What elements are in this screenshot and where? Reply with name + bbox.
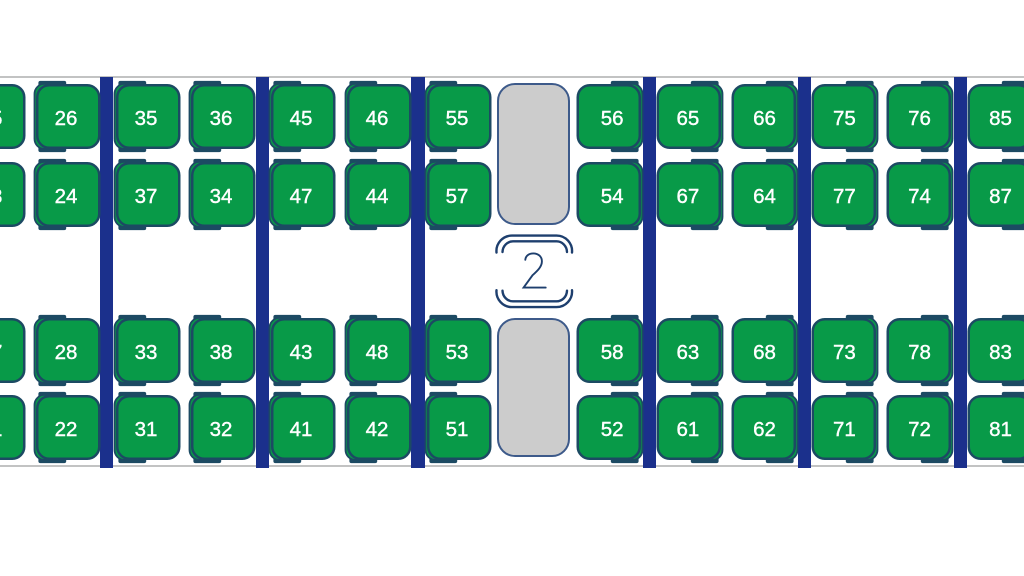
svg-text:68: 68	[753, 341, 776, 364]
svg-text:87: 87	[989, 185, 1012, 208]
svg-text:38: 38	[210, 341, 233, 364]
svg-text:25: 25	[0, 106, 3, 129]
svg-text:31: 31	[134, 418, 157, 441]
svg-text:57: 57	[446, 185, 469, 208]
svg-text:45: 45	[290, 106, 313, 129]
svg-text:41: 41	[290, 418, 313, 441]
svg-text:44: 44	[366, 185, 389, 208]
svg-text:26: 26	[54, 106, 77, 129]
svg-text:62: 62	[753, 418, 776, 441]
svg-text:52: 52	[600, 418, 623, 441]
svg-text:42: 42	[366, 418, 389, 441]
svg-text:85: 85	[989, 106, 1012, 129]
svg-text:73: 73	[833, 341, 856, 364]
svg-text:76: 76	[909, 106, 932, 129]
svg-text:21: 21	[0, 418, 3, 441]
svg-text:23: 23	[0, 185, 3, 208]
svg-text:65: 65	[677, 106, 700, 129]
svg-text:24: 24	[54, 185, 77, 208]
svg-text:34: 34	[210, 185, 233, 208]
svg-text:43: 43	[290, 341, 313, 364]
svg-text:75: 75	[833, 106, 856, 129]
svg-text:53: 53	[446, 341, 469, 364]
svg-text:74: 74	[909, 185, 932, 208]
svg-text:47: 47	[290, 185, 313, 208]
svg-text:77: 77	[833, 185, 856, 208]
svg-text:63: 63	[677, 341, 700, 364]
svg-text:56: 56	[600, 106, 623, 129]
svg-text:33: 33	[134, 341, 157, 364]
svg-text:36: 36	[210, 106, 233, 129]
svg-text:61: 61	[677, 418, 700, 441]
svg-text:54: 54	[600, 185, 623, 208]
svg-text:28: 28	[54, 341, 77, 364]
svg-text:27: 27	[0, 341, 3, 364]
svg-text:72: 72	[909, 418, 932, 441]
svg-text:22: 22	[54, 418, 77, 441]
svg-text:81: 81	[989, 418, 1012, 441]
svg-text:58: 58	[600, 341, 623, 364]
svg-text:46: 46	[366, 106, 389, 129]
svg-text:51: 51	[446, 418, 469, 441]
svg-text:66: 66	[753, 106, 776, 129]
svg-text:83: 83	[989, 341, 1012, 364]
svg-text:78: 78	[909, 341, 932, 364]
svg-text:67: 67	[677, 185, 700, 208]
svg-text:37: 37	[134, 185, 157, 208]
svg-text:35: 35	[134, 106, 157, 129]
svg-text:48: 48	[366, 341, 389, 364]
svg-text:71: 71	[833, 418, 856, 441]
svg-text:55: 55	[446, 106, 469, 129]
svg-text:32: 32	[210, 418, 233, 441]
svg-text:64: 64	[753, 185, 776, 208]
